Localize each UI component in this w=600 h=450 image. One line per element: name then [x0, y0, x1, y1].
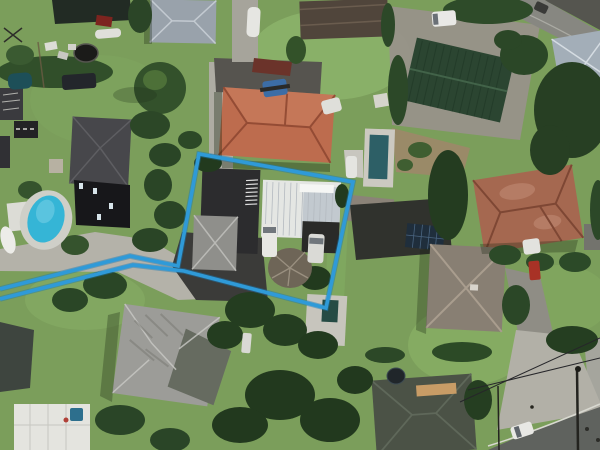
power-pole-1-top: [575, 366, 581, 372]
tree-below-big: [130, 111, 170, 139]
spa-top-left: [7, 72, 32, 90]
car-red-right: [528, 261, 541, 281]
big-tree-highlight: [143, 70, 167, 90]
blue-spa-bottom-left: [70, 408, 83, 421]
boat-trailer-top-left-drive: [246, 7, 261, 38]
trees-left-of-bottom-house2: [52, 288, 88, 312]
house-top-center-roof: [150, 0, 217, 44]
trees-below-patio: [298, 331, 338, 359]
red-dot-bottom-left: [64, 418, 69, 423]
tree-top-left: [6, 45, 34, 65]
left-center-house-roof: [69, 117, 131, 187]
left-edge-roof-small2: [0, 136, 10, 168]
trees-left-of-terracotta: [428, 150, 468, 240]
house-top-left-roof: [52, 0, 132, 24]
trees-bottom-center4: [337, 366, 373, 394]
small-tan-shed: [49, 159, 63, 173]
hedge-bottom-right-house: [365, 347, 405, 363]
trees-bottom-center3: [212, 407, 268, 443]
tan-house-chimney: [470, 284, 478, 290]
car-white-parcel-windshield: [309, 238, 323, 245]
trees-below-terracotta3: [559, 252, 591, 272]
left-edge-house-lower: [0, 322, 34, 392]
car-white-mid-trees: [241, 333, 252, 354]
tree-above-parcel-left: [178, 131, 202, 149]
tree-column-shed-left: [388, 55, 408, 125]
lap-pool: [368, 135, 389, 180]
power-pole-2: [498, 386, 499, 450]
tree-row-driveway4: [132, 228, 168, 252]
dark-deck-top-left: [62, 73, 97, 90]
left-center-house-window3: [97, 214, 101, 220]
aerial-map-viewport[interactable]: [0, 0, 600, 450]
laundry-item3: [68, 44, 76, 50]
trees-bottom-left1: [95, 405, 145, 435]
tree-row-driveway1: [149, 143, 181, 167]
trees-bottom-right-corner: [546, 326, 598, 354]
road-bollard-1: [585, 427, 589, 431]
scrub-green3: [397, 159, 413, 171]
car-white-parcel-ne: [346, 156, 357, 178]
trees-below-terracotta1: [489, 245, 521, 265]
left-center-house-window4: [109, 203, 113, 209]
aerial-map-svg[interactable]: [0, 0, 600, 450]
tree-shadow-lawn: [113, 87, 157, 103]
van-white-parcel-windshield: [263, 227, 276, 233]
van-white-top-windshield: [433, 14, 439, 25]
trees-right-of-tan-house: [502, 285, 530, 325]
trampoline: [74, 44, 98, 62]
trees-bottom-center2: [300, 398, 360, 442]
tree-row-driveway2: [144, 169, 172, 201]
pedestrian-dot: [530, 405, 534, 409]
spa-pool-right-center: [321, 300, 338, 323]
tree-top-center-gap: [286, 36, 306, 64]
water-tank-dark: [387, 368, 405, 384]
trees-right-mass2: [530, 125, 570, 175]
tree-clump-mid-right2: [494, 30, 522, 50]
left-edge-roof-small: [0, 88, 23, 120]
left-center-house-window2: [93, 188, 97, 194]
parcel-garage-skylight: [300, 184, 334, 193]
tree-strip-brown-house: [381, 3, 395, 47]
car-white-right: [522, 238, 541, 255]
hedge-tan-bottom-house: [432, 342, 492, 362]
small-white-shed: [373, 93, 389, 108]
trees-below-parcel3: [207, 321, 243, 349]
left-center-house-window1: [79, 183, 83, 189]
road-bollard-2: [596, 438, 600, 442]
power-pole-1: [577, 368, 578, 450]
tree-row-driveway3: [154, 201, 186, 229]
trees-right-of-bottom-house: [464, 380, 492, 420]
scrub-green1: [408, 142, 432, 158]
